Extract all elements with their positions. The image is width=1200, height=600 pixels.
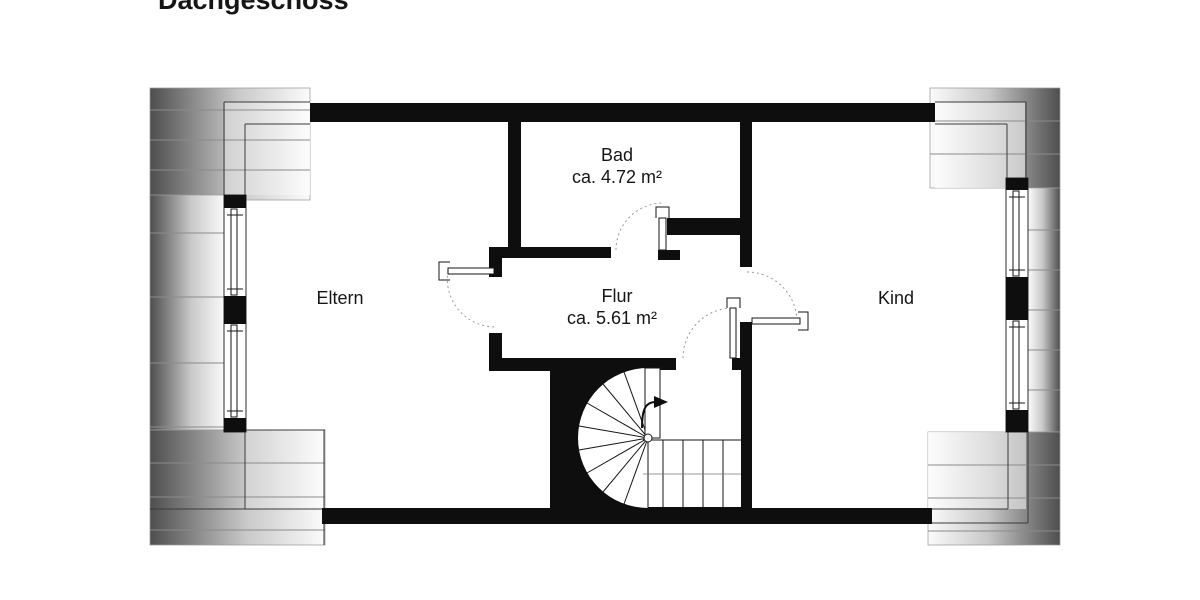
window-sill-right-bottom [1006,410,1028,432]
roof-slope-inner-top-right [935,102,1025,188]
wall-bottom [322,508,932,524]
door-stairs [683,298,740,358]
window-sill-left-top [224,195,246,208]
wall-bad-door-stub [658,250,680,260]
door-stairs-swing-arc [683,308,733,358]
roof-slope-mid-left [150,195,225,430]
stair-door-gap [676,358,732,371]
floor-plan-page: Dachgeschoss Eltern Bad ca. 4.72 m² Flur… [0,0,1200,600]
wall-kind-divider-lower [740,322,752,510]
room-label-flur: Flur [602,286,633,306]
door-kind-leaf [752,318,800,324]
stair-straight-treads [643,438,741,507]
wall-bad-south-left [489,247,611,258]
room-label-bad: Bad [601,145,633,165]
door-kind-swing-arc [747,272,797,322]
door-stairs-leaf [730,308,736,358]
room-label-eltern: Eltern [316,288,363,308]
wall-eltern-bad-divider [508,122,521,252]
stair-newel-hub [644,434,652,442]
door-kind [747,272,808,330]
floor-plan-drawing: Dachgeschoss Eltern Bad ca. 4.72 m² Flur… [0,0,1200,600]
door-eltern [439,262,495,327]
room-label-kind: Kind [878,288,914,308]
door-stairs-hinge-mark [727,298,740,308]
door-bad-leaf [659,218,666,250]
wall-bad-kind-divider [740,122,752,267]
roof-slope-inner-top-left [225,102,310,195]
room-area-bad: ca. 4.72 m² [572,167,662,187]
window-pier-right [1006,277,1028,320]
roof-slope-inner-bottom-right [928,432,1026,509]
door-eltern-leaf [448,268,494,274]
window-wall-right [1006,178,1028,432]
window-sill-right-top [1006,178,1028,190]
stair-landing [660,370,741,439]
door-bad-hinge-mark [656,207,669,218]
staircase [550,358,741,510]
room-area-flur: ca. 5.61 m² [567,308,657,328]
door-bad [616,203,669,250]
wall-bad-south-right [667,218,752,235]
window-wall-left [224,195,246,432]
wall-top [310,103,935,122]
door-eltern-swing-arc [447,271,495,327]
window-sill-left-bottom [224,418,246,432]
window-pier-left [224,296,246,324]
page-title: Dachgeschoss [158,0,349,15]
